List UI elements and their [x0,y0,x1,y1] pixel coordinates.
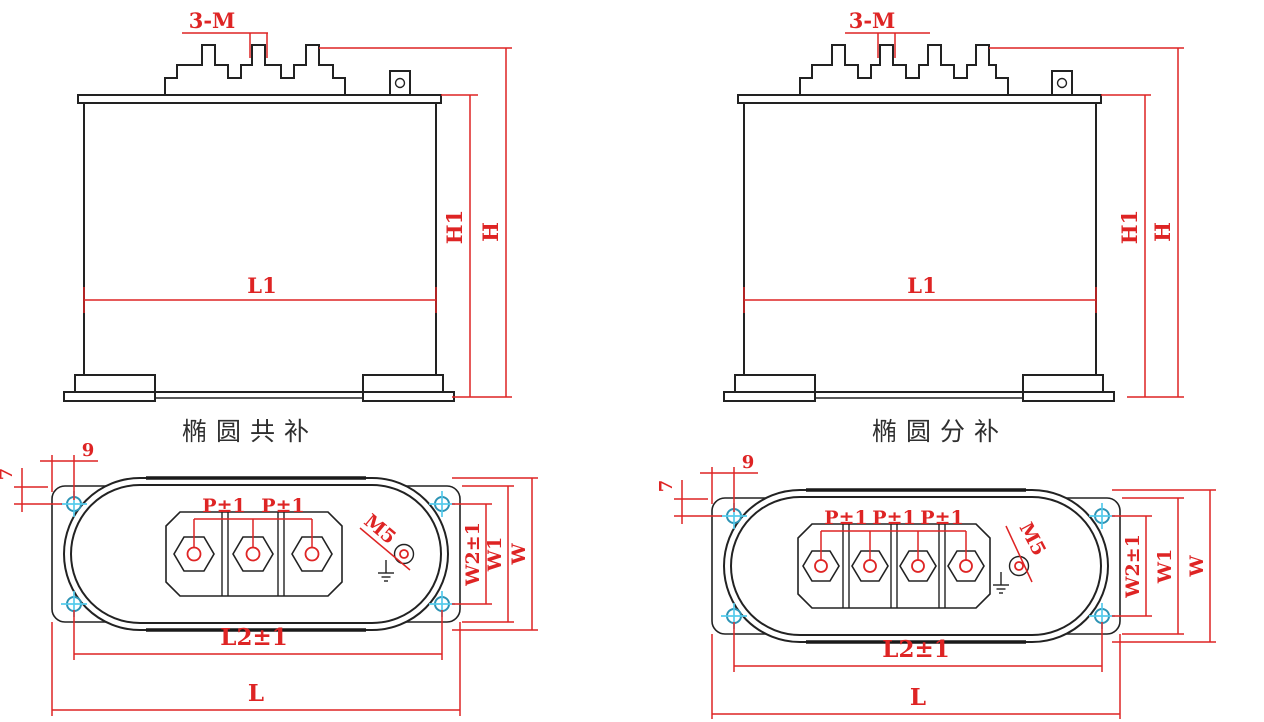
dim-label-w1: W1 [484,537,506,573]
foot-left [735,375,815,392]
drawing-canvas: 3-M H1 H L1 椭圆共补 3-M [0,0,1264,722]
case-cover [738,95,1101,103]
foot-right [1023,375,1103,392]
dim-label-w2: W2±1 [462,522,484,587]
case-body [84,103,436,392]
dim-label-l1: L1 [907,273,936,298]
mounting-lug [1052,71,1072,95]
dim-label-pitch: P±1 [872,507,915,529]
dim-label-l: L [910,684,926,711]
dim-label-pitch: P±1 [261,495,304,517]
dim-label-w: W [1186,555,1208,578]
capacitor-drawing-svg: 3-M H1 H L1 椭圆共补 3-M [0,0,1264,722]
view-title-split: 椭圆分补 [872,417,1008,446]
dim-label-offset9: 9 [82,440,95,461]
foot-base-left [724,392,815,401]
dim-label-offset7: 7 [656,480,677,493]
dim-label-pitch: P±1 [920,507,963,529]
dim-label-w2: W2±1 [1122,534,1144,599]
foot-right [363,375,443,392]
dim-label-offset9: 9 [742,452,755,473]
dim-label-w: W [508,543,530,566]
dim-label-h1: H1 [1117,210,1142,244]
dim-label-pitch: P±1 [202,495,245,517]
dim-label-pitch: P±1 [824,507,867,529]
case-cover [78,95,441,103]
dim-label-h: H [1150,222,1175,242]
dim-label-terminal-thread: 3-M [189,8,236,33]
mounting-lug [390,71,410,95]
dim-label-l1: L1 [247,273,276,298]
foot-base-left [64,392,155,401]
foot-left [75,375,155,392]
dim-label-l2: L2±1 [882,636,949,663]
foot-base-right [363,392,454,401]
case-body [744,103,1096,392]
dim-label-h1: H1 [442,210,467,244]
dim-label-terminal-thread: 3-M [849,8,896,33]
foot-base-right [1023,392,1114,401]
dim-label-offset7: 7 [0,468,17,481]
dim-label-h: H [478,222,503,242]
dim-label-l: L [248,680,264,707]
dim-label-l2: L2±1 [220,624,287,651]
view-title-common: 椭圆共补 [182,417,318,446]
dim-label-w1: W1 [1154,549,1176,585]
